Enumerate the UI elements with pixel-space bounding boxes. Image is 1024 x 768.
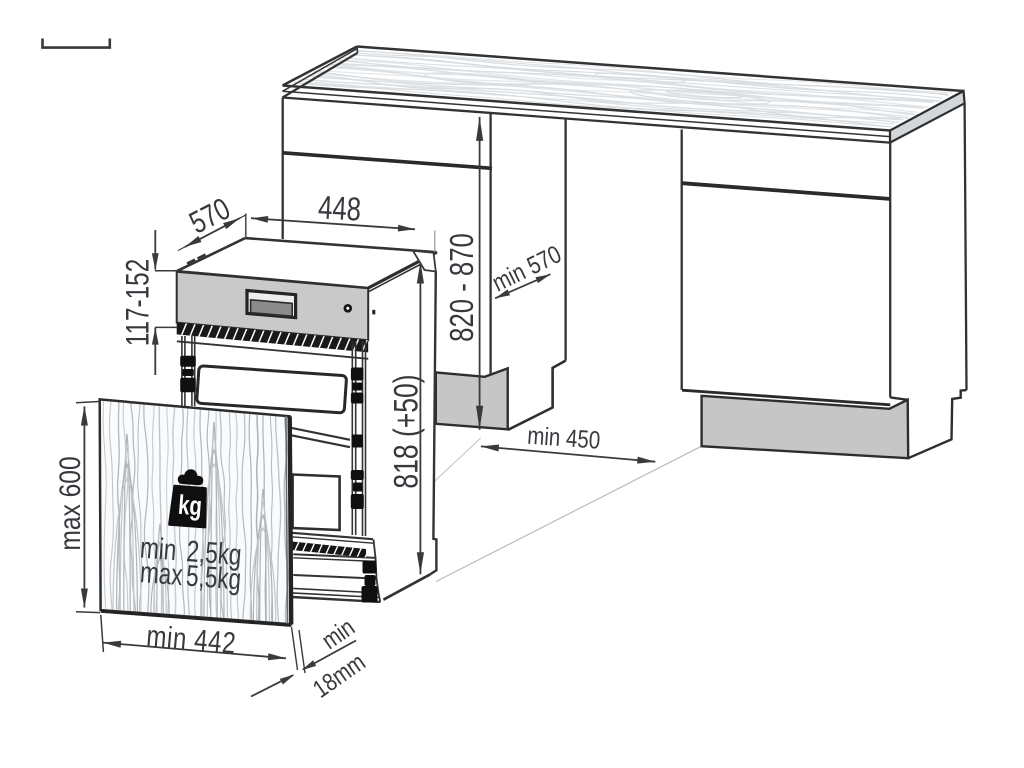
svg-text:max 600: max 600 [53, 456, 87, 550]
svg-text:448: 448 [317, 189, 362, 228]
svg-text:820 - 870: 820 - 870 [444, 233, 481, 342]
svg-text:kg: kg [177, 490, 203, 522]
svg-text:818 (+50): 818 (+50) [387, 374, 425, 488]
svg-text:max: max [139, 555, 184, 592]
svg-text:min 450: min 450 [526, 421, 601, 454]
svg-text:117-152: 117-152 [120, 259, 156, 346]
svg-text:5,5kg: 5,5kg [185, 558, 242, 596]
